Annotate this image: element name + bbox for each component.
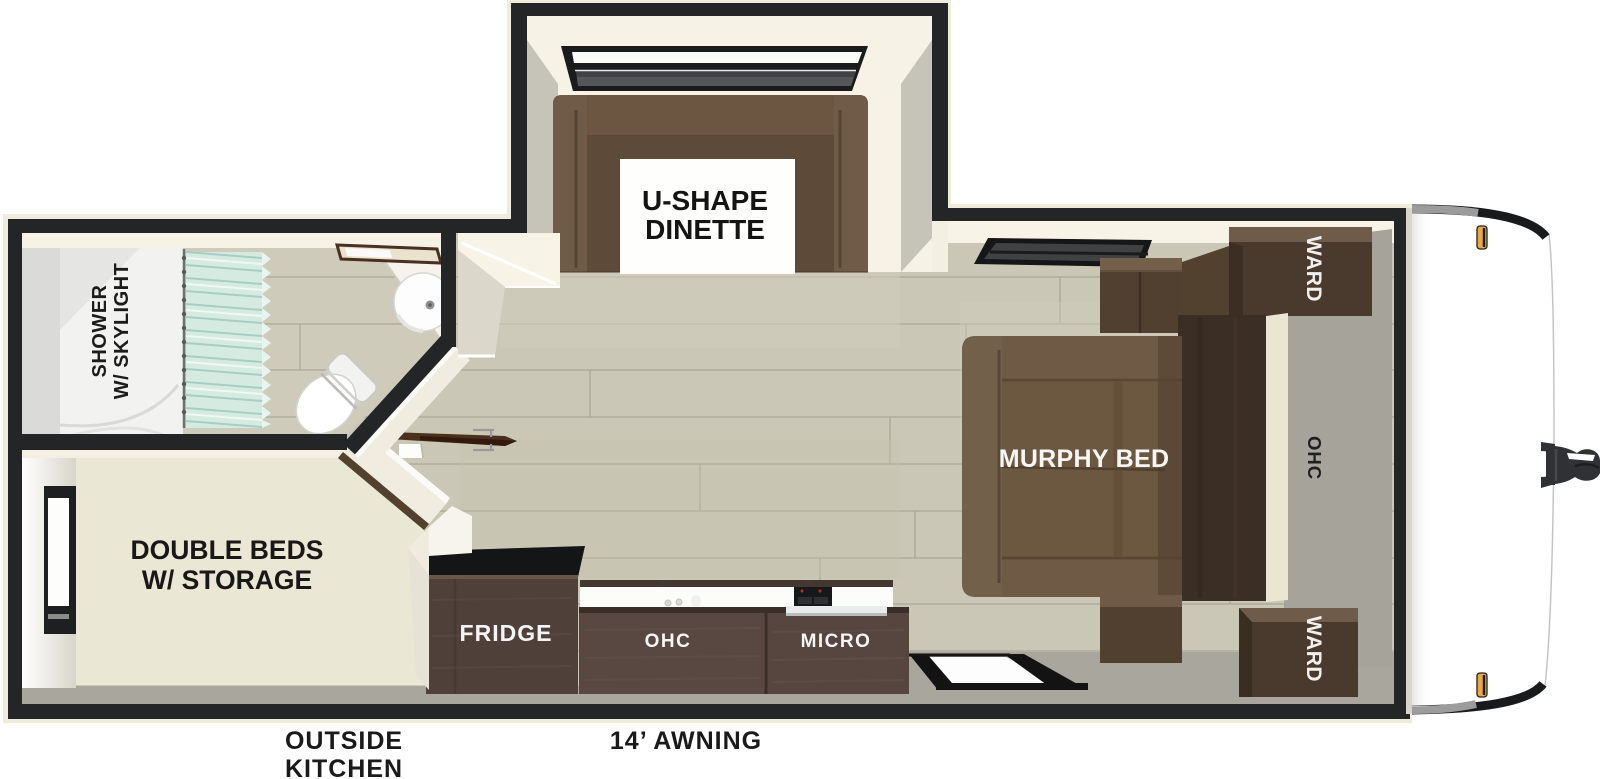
- svg-text:OHC: OHC: [1304, 436, 1325, 480]
- svg-text:FRIDGE: FRIDGE: [460, 620, 553, 646]
- svg-text:W/ STORAGE: W/ STORAGE: [142, 565, 312, 595]
- svg-text:U-SHAPE: U-SHAPE: [642, 185, 768, 216]
- svg-text:KITCHEN: KITCHEN: [285, 755, 403, 779]
- svg-text:14’ AWNING: 14’ AWNING: [610, 727, 762, 755]
- svg-text:SHOWER: SHOWER: [89, 284, 111, 377]
- svg-text:MURPHY BED: MURPHY BED: [999, 445, 1170, 473]
- svg-text:W/ SKYLIGHT: W/ SKYLIGHT: [111, 263, 133, 400]
- svg-text:DINETTE: DINETTE: [645, 214, 765, 245]
- svg-text:WARD: WARD: [1302, 236, 1325, 302]
- svg-text:MICRO: MICRO: [801, 631, 872, 652]
- svg-text:OHC: OHC: [645, 631, 692, 652]
- svg-text:WARD: WARD: [1302, 616, 1325, 682]
- svg-text:DOUBLE BEDS: DOUBLE BEDS: [131, 535, 324, 565]
- svg-text:OUTSIDE: OUTSIDE: [285, 727, 403, 755]
